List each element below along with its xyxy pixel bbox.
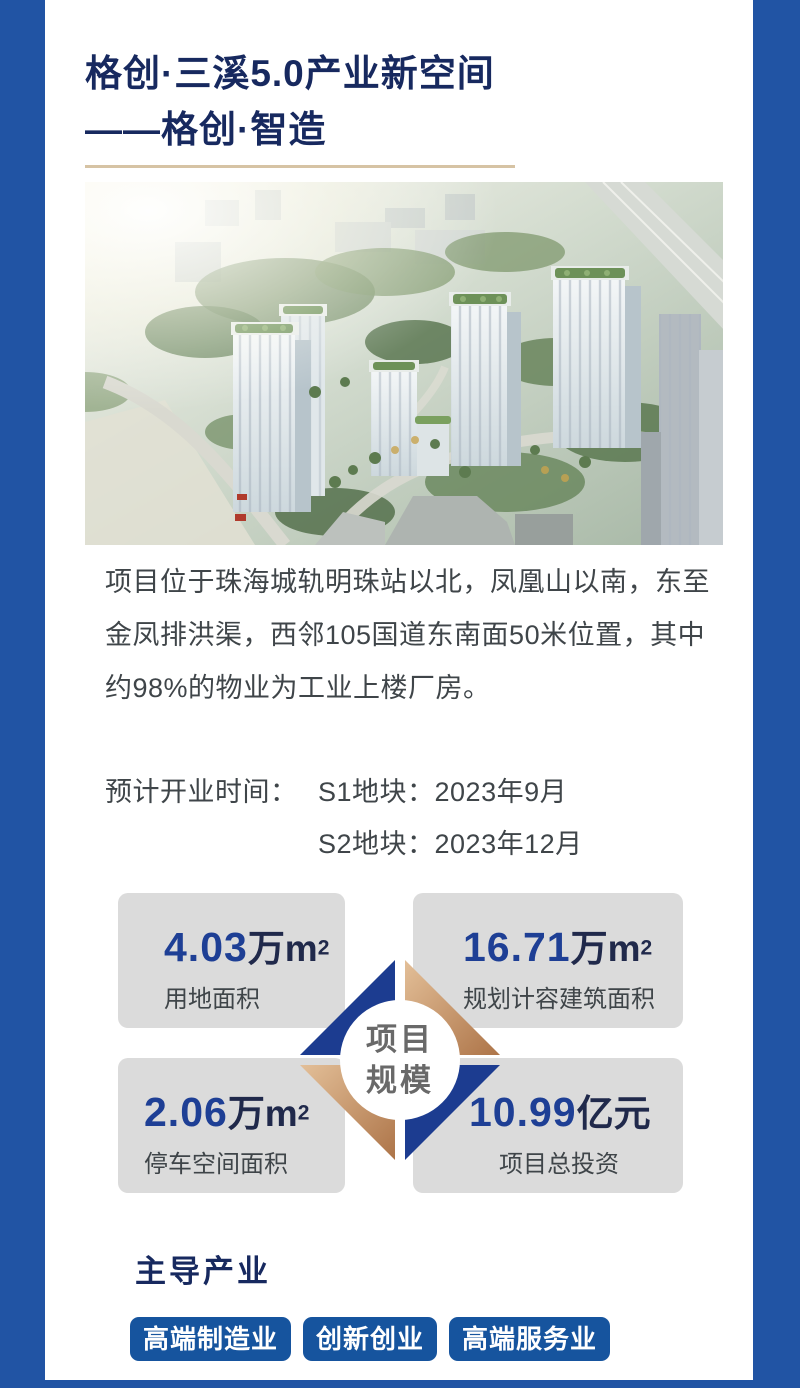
- stat-unit: 亿元: [577, 1093, 651, 1134]
- opening-time-block: 预计开业时间： S1地块：2023年9月 S2地块：2023年12月: [105, 766, 583, 870]
- opening-time-s1: S1地块：2023年9月: [318, 766, 567, 818]
- industry-tag-services: 高端服务业: [449, 1317, 610, 1361]
- location-paragraph: 项目位于珠海城轨明珠站以北，凤凰山以南，东至金凤排洪渠，西邻105国道东南面50…: [105, 556, 715, 715]
- opening-time-spacer: [105, 818, 318, 870]
- scale-center-line1: 项目: [366, 1019, 434, 1060]
- opening-time-s2: S2地块：2023年12月: [318, 818, 583, 870]
- page-content: 格创·三溪5.0产业新空间 ——格创·智造: [45, 0, 753, 1380]
- industry-tag-innovation: 创新创业: [303, 1317, 437, 1361]
- scale-diamond-graphic: 项目 规模: [290, 950, 510, 1170]
- stat-label: 项目总投资: [499, 1144, 683, 1179]
- aerial-render-image: [85, 182, 723, 545]
- scale-diamond-center: 项目 规模: [340, 1000, 460, 1120]
- stat-value: 2.06: [144, 1089, 228, 1135]
- scale-center-line2: 规模: [366, 1060, 434, 1101]
- bottom-divider-bar: [0, 1380, 800, 1388]
- opening-time-label: 预计开业时间：: [105, 766, 318, 818]
- industry-tags-row: 高端制造业 创新创业 高端服务业: [130, 1317, 610, 1361]
- stat-unit: 万m: [571, 928, 641, 969]
- left-border-bar: [0, 0, 45, 1388]
- page-title: 格创·三溪5.0产业新空间 ——格创·智造: [85, 46, 515, 168]
- right-border-bar: [753, 0, 800, 1388]
- industry-tag-manufacturing: 高端制造业: [130, 1317, 291, 1361]
- page-title-line2: ——格创·智造: [85, 102, 515, 158]
- title-underline: [85, 165, 515, 168]
- industries-heading: 主导产业: [135, 1246, 271, 1291]
- project-scale-infographic: 4.03万m2 用地面积 16.71万m2 规划计容建筑面积 2.06万m2 停…: [45, 893, 753, 1193]
- stat-superscript: 2: [641, 937, 653, 960]
- stat-unit: 万m: [228, 1093, 298, 1134]
- page-title-line1: 格创·三溪5.0产业新空间: [85, 46, 515, 102]
- stat-value: 4.03: [164, 924, 248, 970]
